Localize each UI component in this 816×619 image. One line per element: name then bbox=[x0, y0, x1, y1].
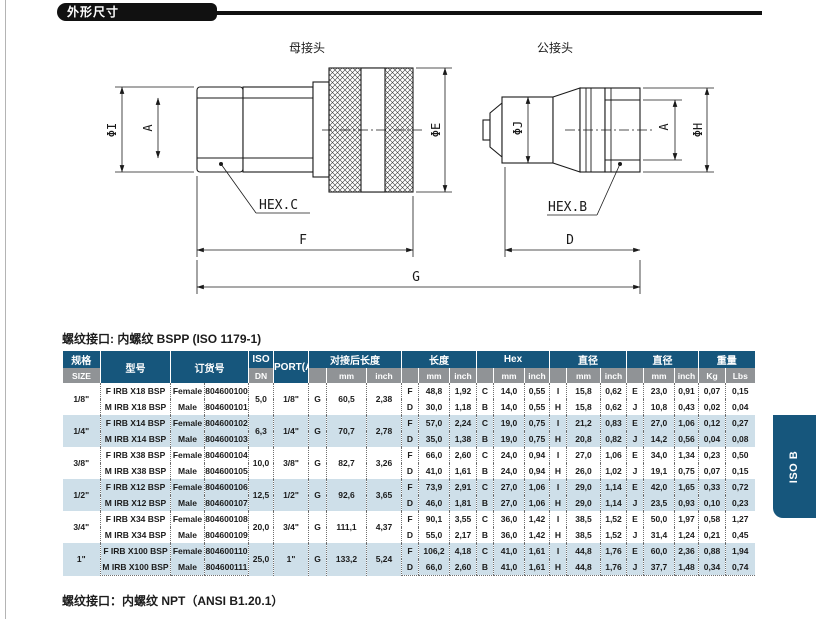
cell-hex-letter: B bbox=[477, 463, 494, 479]
col-header-model: 型号 bbox=[101, 351, 171, 383]
cell-hex-letter: B bbox=[477, 399, 494, 415]
cell-dia2-mm: 19,1 bbox=[644, 463, 675, 479]
col-header-weight: 重量 bbox=[699, 351, 755, 368]
cell-gender: Female bbox=[171, 415, 205, 431]
cell-size: 1" bbox=[63, 543, 101, 576]
cell-dia1-mm: 20,8 bbox=[567, 431, 601, 447]
cell-dia1-letter: I bbox=[550, 511, 567, 527]
col-header-iso: ISO bbox=[249, 351, 274, 368]
cell-size: 3/8" bbox=[63, 447, 101, 479]
cell-dia2-inch: 1,97 bbox=[675, 511, 699, 527]
cell-dia1-mm: 29,0 bbox=[567, 495, 601, 511]
cell-hex-mm: 36,0 bbox=[494, 527, 525, 543]
cell-hex-letter: C bbox=[477, 543, 494, 559]
cell-dia2-letter: E bbox=[627, 479, 644, 495]
cell-dia1-letter: H bbox=[550, 399, 567, 415]
cell-length-letter: D bbox=[402, 495, 419, 511]
dim-label-d: D bbox=[566, 233, 574, 248]
cell-hex-mm: 14,0 bbox=[494, 383, 525, 399]
cell-connected-inch: 5,24 bbox=[367, 543, 402, 576]
cell-weight-kg: 0,23 bbox=[699, 447, 726, 463]
cell-length-mm: 66,0 bbox=[419, 447, 450, 463]
cell-weight-kg: 0,07 bbox=[699, 463, 726, 479]
cell-length-inch: 1,18 bbox=[450, 399, 477, 415]
cell-hex-inch: 1,42 bbox=[525, 511, 550, 527]
cell-hex-inch: 1,61 bbox=[525, 543, 550, 559]
cell-port: 1" bbox=[274, 543, 309, 576]
dim-label-a-female: A bbox=[141, 124, 155, 132]
side-tab-iso-b[interactable]: ISO B bbox=[773, 415, 816, 518]
cell-hex-mm: 41,0 bbox=[494, 543, 525, 559]
cell-dia1-mm: 15,8 bbox=[567, 399, 601, 415]
cell-model: M IRB X34 BSP bbox=[101, 527, 171, 543]
cell-gender: Male bbox=[171, 559, 205, 576]
cell-model: M IRB X18 BSP bbox=[101, 399, 171, 415]
cell-dia1-letter: H bbox=[550, 431, 567, 447]
spec-table-head: 规格 型号 订货号 ISO PORT(A) 对接后长度 长度 Hex 直径 直径… bbox=[63, 351, 755, 383]
cell-dia1-inch: 1,52 bbox=[601, 527, 627, 543]
cell-length-inch: 1,81 bbox=[450, 495, 477, 511]
cell-connected-mm: 92,6 bbox=[327, 479, 367, 511]
cell-dia1-letter: H bbox=[550, 559, 567, 576]
col-header-diameter2: 直径 bbox=[627, 351, 699, 368]
col-header-order: 订货号 bbox=[171, 351, 249, 383]
col-header-size-en: SIZE bbox=[63, 368, 101, 383]
cell-dia1-inch: 0,62 bbox=[601, 383, 627, 399]
cell-dim-letter-g: G bbox=[309, 447, 327, 479]
col-header-dia2-mm: mm bbox=[644, 368, 675, 383]
cell-length-letter: F bbox=[402, 479, 419, 495]
cell-port: 3/4" bbox=[274, 511, 309, 543]
cell-order-number: 804600110 bbox=[205, 543, 249, 559]
col-header-dia1-inch: inch bbox=[601, 368, 627, 383]
cell-dia1-inch: 0,82 bbox=[601, 431, 627, 447]
cell-dia1-inch: 1,76 bbox=[601, 559, 627, 576]
cell-weight-lbs: 0,27 bbox=[726, 415, 755, 431]
cell-dia1-mm: 38,5 bbox=[567, 527, 601, 543]
cell-dia2-inch: 1,65 bbox=[675, 479, 699, 495]
cell-length-inch: 2,17 bbox=[450, 527, 477, 543]
cell-length-inch: 2,60 bbox=[450, 447, 477, 463]
cell-connected-mm: 70,7 bbox=[327, 415, 367, 447]
cell-dia2-inch: 0,93 bbox=[675, 495, 699, 511]
cell-dia1-letter: I bbox=[550, 383, 567, 399]
dim-label-phi-h: ΦH bbox=[691, 123, 705, 137]
cell-iso-dn: 12,5 bbox=[249, 479, 274, 511]
cell-weight-lbs: 0,15 bbox=[726, 383, 755, 399]
cell-weight-lbs: 0,15 bbox=[726, 463, 755, 479]
cell-hex-inch: 0,55 bbox=[525, 399, 550, 415]
cell-port: 1/2" bbox=[274, 479, 309, 511]
cell-order-number: 804600106 bbox=[205, 479, 249, 495]
col-header-port: PORT(A) bbox=[274, 351, 309, 383]
cell-hex-letter: C bbox=[477, 415, 494, 431]
cell-order-number: 804600102 bbox=[205, 415, 249, 431]
cell-hex-letter: C bbox=[477, 447, 494, 463]
cell-size: 1/8" bbox=[63, 383, 101, 415]
cell-weight-kg: 0,88 bbox=[699, 543, 726, 559]
cell-dia1-mm: 26,0 bbox=[567, 463, 601, 479]
cell-dia1-mm: 15,8 bbox=[567, 383, 601, 399]
cell-iso-dn: 5,0 bbox=[249, 383, 274, 415]
cell-dia2-letter: E bbox=[627, 447, 644, 463]
cell-weight-kg: 0,10 bbox=[699, 495, 726, 511]
cell-dia2-letter: E bbox=[627, 511, 644, 527]
cell-connected-inch: 3,65 bbox=[367, 479, 402, 511]
cell-order-number: 804600100 bbox=[205, 383, 249, 399]
cell-length-mm: 55,0 bbox=[419, 527, 450, 543]
cell-weight-lbs: 0,23 bbox=[726, 495, 755, 511]
cell-order-number: 804600105 bbox=[205, 463, 249, 479]
cell-length-mm: 73,9 bbox=[419, 479, 450, 495]
spec-table-wrap: 规格 型号 订货号 ISO PORT(A) 对接后长度 长度 Hex 直径 直径… bbox=[62, 351, 755, 576]
cell-connected-inch: 4,37 bbox=[367, 511, 402, 543]
cell-dia2-inch: 0,56 bbox=[675, 431, 699, 447]
cell-hex-mm: 14,0 bbox=[494, 399, 525, 415]
cell-order-number: 804600101 bbox=[205, 399, 249, 415]
cell-size: 3/4" bbox=[63, 511, 101, 543]
cell-length-mm: 57,0 bbox=[419, 415, 450, 431]
cell-length-inch: 1,38 bbox=[450, 431, 477, 447]
cell-order-number: 804600104 bbox=[205, 447, 249, 463]
cell-dia2-letter: J bbox=[627, 559, 644, 576]
cell-dia2-inch: 0,91 bbox=[675, 383, 699, 399]
cell-length-mm: 48,8 bbox=[419, 383, 450, 399]
col-header-lbs: Lbs bbox=[726, 368, 755, 383]
cell-dia1-mm: 44,8 bbox=[567, 543, 601, 559]
col-subheader-spacer bbox=[627, 368, 644, 383]
dimension-drawing: 母接头 公接头 ΦI A ΦE HEX.C F G bbox=[60, 30, 760, 320]
col-header-connected-length: 对接后长度 bbox=[309, 351, 402, 368]
page-left-border bbox=[5, 0, 6, 619]
dim-label-phi-e: ΦE bbox=[429, 123, 443, 137]
cell-dim-letter-g: G bbox=[309, 543, 327, 576]
col-header-hex-inch: inch bbox=[525, 368, 550, 383]
cell-gender: Male bbox=[171, 527, 205, 543]
dim-label-hex-c: HEX.C bbox=[259, 198, 298, 213]
spec-table-body: 1/8"F IRB X18 BSPFemale8046001005,01/8"G… bbox=[63, 383, 755, 576]
cell-weight-kg: 0,02 bbox=[699, 399, 726, 415]
dim-label-g: G bbox=[412, 270, 420, 285]
cell-length-letter: D bbox=[402, 399, 419, 415]
cell-dia1-letter: I bbox=[550, 415, 567, 431]
cell-length-letter: D bbox=[402, 431, 419, 447]
cell-hex-letter: C bbox=[477, 511, 494, 527]
cell-model: M IRB X12 BSP bbox=[101, 495, 171, 511]
thread-caption-npt: 螺纹接口：内螺纹 NPT（ANSI B1.20.1） bbox=[62, 592, 283, 609]
cell-weight-lbs: 0,72 bbox=[726, 479, 755, 495]
cell-hex-letter: C bbox=[477, 383, 494, 399]
dim-label-phi-i: ΦI bbox=[105, 123, 119, 137]
cell-gender: Female bbox=[171, 447, 205, 463]
cell-length-mm: 41,0 bbox=[419, 463, 450, 479]
cell-dia2-letter: J bbox=[627, 463, 644, 479]
cell-weight-kg: 0,07 bbox=[699, 383, 726, 399]
cell-dia2-inch: 0,43 bbox=[675, 399, 699, 415]
cell-hex-mm: 19,0 bbox=[494, 415, 525, 431]
cell-dia2-letter: J bbox=[627, 527, 644, 543]
cell-order-number: 804600108 bbox=[205, 511, 249, 527]
cell-dia1-inch: 0,62 bbox=[601, 399, 627, 415]
cell-dia1-letter: H bbox=[550, 527, 567, 543]
section-header-rule bbox=[212, 11, 762, 15]
cell-weight-lbs: 0,50 bbox=[726, 447, 755, 463]
cell-size: 1/4" bbox=[63, 415, 101, 447]
cell-length-mm: 106,2 bbox=[419, 543, 450, 559]
cell-hex-letter: B bbox=[477, 559, 494, 576]
cell-weight-lbs: 0,08 bbox=[726, 431, 755, 447]
spec-table: 规格 型号 订货号 ISO PORT(A) 对接后长度 长度 Hex 直径 直径… bbox=[62, 351, 755, 576]
col-header-len-inch: inch bbox=[450, 368, 477, 383]
dim-label-phi-j: ΦJ bbox=[511, 121, 525, 135]
cell-connected-inch: 2,78 bbox=[367, 415, 402, 447]
cell-connected-mm: 60,5 bbox=[327, 383, 367, 415]
cell-hex-letter: B bbox=[477, 495, 494, 511]
cell-dia1-letter: I bbox=[550, 479, 567, 495]
cell-connected-mm: 82,7 bbox=[327, 447, 367, 479]
cell-dia1-letter: H bbox=[550, 463, 567, 479]
cell-dia2-letter: E bbox=[627, 415, 644, 431]
cell-dia1-inch: 1,06 bbox=[601, 447, 627, 463]
col-header-len-mm: mm bbox=[419, 368, 450, 383]
section-header: 外形尺寸 bbox=[57, 3, 762, 21]
col-header-conn-inch: inch bbox=[367, 368, 402, 383]
cell-model: F IRB X38 BSP bbox=[101, 447, 171, 463]
dim-label-a-male: A bbox=[657, 123, 671, 131]
cell-dia2-letter: E bbox=[627, 383, 644, 399]
col-subheader-spacer bbox=[402, 368, 419, 383]
cell-order-number: 804600109 bbox=[205, 527, 249, 543]
col-header-dia2-inch: inch bbox=[675, 368, 699, 383]
cell-hex-mm: 19,0 bbox=[494, 431, 525, 447]
cell-length-inch: 2,91 bbox=[450, 479, 477, 495]
cell-port: 3/8" bbox=[274, 447, 309, 479]
cell-length-inch: 1,92 bbox=[450, 383, 477, 399]
cell-hex-inch: 0,75 bbox=[525, 431, 550, 447]
cell-dia2-mm: 37,7 bbox=[644, 559, 675, 576]
cell-hex-mm: 24,0 bbox=[494, 463, 525, 479]
cell-hex-letter: C bbox=[477, 479, 494, 495]
cell-port: 1/8" bbox=[274, 383, 309, 415]
dim-label-hex-b: HEX.B bbox=[548, 200, 587, 215]
col-header-length: 长度 bbox=[402, 351, 477, 368]
cell-weight-kg: 0,58 bbox=[699, 511, 726, 527]
cell-hex-inch: 1,06 bbox=[525, 495, 550, 511]
cell-length-mm: 66,0 bbox=[419, 559, 450, 576]
cell-dia1-inch: 1,02 bbox=[601, 463, 627, 479]
cell-dia1-letter: H bbox=[550, 495, 567, 511]
cell-dim-letter-g: G bbox=[309, 415, 327, 447]
cell-dim-letter-g: G bbox=[309, 511, 327, 543]
dim-label-f: F bbox=[299, 233, 307, 248]
cell-gender: Male bbox=[171, 399, 205, 415]
cell-hex-mm: 27,0 bbox=[494, 479, 525, 495]
cell-dia1-letter: I bbox=[550, 447, 567, 463]
cell-length-mm: 46,0 bbox=[419, 495, 450, 511]
cell-dia2-letter: J bbox=[627, 495, 644, 511]
cell-iso-dn: 6,3 bbox=[249, 415, 274, 447]
cell-dia1-inch: 1,52 bbox=[601, 511, 627, 527]
cell-length-mm: 35,0 bbox=[419, 431, 450, 447]
cell-model: F IRB X34 BSP bbox=[101, 511, 171, 527]
cell-gender: Male bbox=[171, 463, 205, 479]
cell-length-inch: 2,24 bbox=[450, 415, 477, 431]
cell-dia1-inch: 1,14 bbox=[601, 495, 627, 511]
cell-length-letter: F bbox=[402, 415, 419, 431]
cell-order-number: 804600111 bbox=[205, 559, 249, 576]
cell-dia1-inch: 0,83 bbox=[601, 415, 627, 431]
cell-dia2-letter: E bbox=[627, 543, 644, 559]
cell-hex-inch: 1,42 bbox=[525, 527, 550, 543]
male-drawing-title: 公接头 bbox=[537, 40, 573, 55]
cell-weight-lbs: 0,45 bbox=[726, 527, 755, 543]
cell-dia2-mm: 31,4 bbox=[644, 527, 675, 543]
cell-iso-dn: 10,0 bbox=[249, 447, 274, 479]
cell-model: M IRB X14 BSP bbox=[101, 431, 171, 447]
cell-iso-dn: 25,0 bbox=[249, 543, 274, 576]
cell-weight-lbs: 0,74 bbox=[726, 559, 755, 576]
cell-iso-dn: 20,0 bbox=[249, 511, 274, 543]
cell-dia2-mm: 34,0 bbox=[644, 447, 675, 463]
cell-dia1-mm: 44,8 bbox=[567, 559, 601, 576]
cell-dim-letter-g: G bbox=[309, 479, 327, 511]
cell-hex-inch: 1,61 bbox=[525, 559, 550, 576]
cell-hex-mm: 24,0 bbox=[494, 447, 525, 463]
cell-hex-inch: 0,94 bbox=[525, 447, 550, 463]
cell-dia1-mm: 29,0 bbox=[567, 479, 601, 495]
cell-length-letter: D bbox=[402, 463, 419, 479]
col-header-conn-mm: mm bbox=[327, 368, 367, 383]
cell-weight-kg: 0,34 bbox=[699, 559, 726, 576]
cell-dia2-inch: 1,34 bbox=[675, 447, 699, 463]
cell-dia1-mm: 38,5 bbox=[567, 511, 601, 527]
cell-model: M IRB X38 BSP bbox=[101, 463, 171, 479]
cell-dia2-inch: 1,06 bbox=[675, 415, 699, 431]
col-header-dia1-mm: mm bbox=[567, 368, 601, 383]
cell-hex-inch: 0,75 bbox=[525, 415, 550, 431]
cell-length-mm: 90,1 bbox=[419, 511, 450, 527]
cell-dia2-inch: 1,24 bbox=[675, 527, 699, 543]
cell-weight-lbs: 0,04 bbox=[726, 399, 755, 415]
cell-hex-mm: 27,0 bbox=[494, 495, 525, 511]
cell-connected-inch: 3,26 bbox=[367, 447, 402, 479]
col-header-hex-mm: mm bbox=[494, 368, 525, 383]
cell-dia1-letter: I bbox=[550, 543, 567, 559]
cell-dia2-mm: 10,8 bbox=[644, 399, 675, 415]
cell-dia1-mm: 21,2 bbox=[567, 415, 601, 431]
cell-weight-kg: 0,21 bbox=[699, 527, 726, 543]
cell-length-inch: 3,55 bbox=[450, 511, 477, 527]
cell-order-number: 804600107 bbox=[205, 495, 249, 511]
col-header-dn: DN bbox=[249, 368, 274, 383]
cell-hex-letter: B bbox=[477, 431, 494, 447]
cell-length-letter: F bbox=[402, 447, 419, 463]
cell-dia2-letter: J bbox=[627, 431, 644, 447]
cell-hex-inch: 0,55 bbox=[525, 383, 550, 399]
cell-size: 1/2" bbox=[63, 479, 101, 511]
cell-dia2-inch: 2,36 bbox=[675, 543, 699, 559]
cell-dia2-mm: 27,0 bbox=[644, 415, 675, 431]
cell-hex-mm: 41,0 bbox=[494, 559, 525, 576]
cell-model: F IRB X18 BSP bbox=[101, 383, 171, 399]
cell-gender: Male bbox=[171, 495, 205, 511]
cell-gender: Male bbox=[171, 431, 205, 447]
col-header-kg: Kg bbox=[699, 368, 726, 383]
cell-dia2-mm: 23,5 bbox=[644, 495, 675, 511]
cell-length-inch: 2,60 bbox=[450, 559, 477, 576]
cell-gender: Female bbox=[171, 543, 205, 559]
cell-length-letter: D bbox=[402, 527, 419, 543]
cell-length-letter: D bbox=[402, 559, 419, 576]
cell-hex-inch: 0,94 bbox=[525, 463, 550, 479]
cell-weight-kg: 0,33 bbox=[699, 479, 726, 495]
cell-gender: Female bbox=[171, 383, 205, 399]
cell-gender: Female bbox=[171, 479, 205, 495]
cell-dia2-inch: 0,75 bbox=[675, 463, 699, 479]
cell-weight-kg: 0,12 bbox=[699, 415, 726, 431]
cell-model: F IRB X12 BSP bbox=[101, 479, 171, 495]
cell-connected-inch: 2,38 bbox=[367, 383, 402, 415]
cell-length-mm: 30,0 bbox=[419, 399, 450, 415]
cell-dia2-mm: 50,0 bbox=[644, 511, 675, 527]
cell-hex-letter: B bbox=[477, 527, 494, 543]
cell-length-inch: 1,61 bbox=[450, 463, 477, 479]
cell-dim-letter-g: G bbox=[309, 383, 327, 415]
col-subheader-spacer bbox=[477, 368, 494, 383]
cell-length-inch: 4,18 bbox=[450, 543, 477, 559]
cell-model: M IRB X100 BSP bbox=[101, 559, 171, 576]
cell-weight-kg: 0,04 bbox=[699, 431, 726, 447]
cell-dia1-inch: 1,14 bbox=[601, 479, 627, 495]
cell-model: F IRB X100 BSP bbox=[101, 543, 171, 559]
cell-connected-mm: 133,2 bbox=[327, 543, 367, 576]
col-subheader-spacer bbox=[550, 368, 567, 383]
col-subheader-spacer bbox=[309, 368, 327, 383]
cell-length-letter: F bbox=[402, 383, 419, 399]
cell-hex-mm: 36,0 bbox=[494, 511, 525, 527]
cell-weight-lbs: 1,94 bbox=[726, 543, 755, 559]
col-header-diameter1: 直径 bbox=[550, 351, 627, 368]
cell-connected-mm: 111,1 bbox=[327, 511, 367, 543]
cell-model: F IRB X14 BSP bbox=[101, 415, 171, 431]
cell-length-letter: F bbox=[402, 511, 419, 527]
section-title: 外形尺寸 bbox=[57, 3, 217, 21]
male-coupling-outline bbox=[483, 88, 640, 172]
cell-hex-inch: 1,06 bbox=[525, 479, 550, 495]
cell-dia2-mm: 23,0 bbox=[644, 383, 675, 399]
side-tab-label: ISO B bbox=[788, 450, 800, 482]
cell-length-letter: F bbox=[402, 543, 419, 559]
cell-order-number: 804600103 bbox=[205, 431, 249, 447]
cell-dia1-mm: 27,0 bbox=[567, 447, 601, 463]
cell-dia2-mm: 42,0 bbox=[644, 479, 675, 495]
female-drawing-title: 母接头 bbox=[289, 40, 325, 55]
cell-dia2-mm: 14,2 bbox=[644, 431, 675, 447]
col-header-hex: Hex bbox=[477, 351, 550, 368]
cell-dia2-letter: J bbox=[627, 399, 644, 415]
thread-caption-bspp: 螺纹接口: 内螺纹 BSPP (ISO 1179-1) bbox=[62, 330, 261, 347]
cell-dia1-inch: 1,76 bbox=[601, 543, 627, 559]
cell-dia2-inch: 1,48 bbox=[675, 559, 699, 576]
cell-weight-lbs: 1,27 bbox=[726, 511, 755, 527]
cell-gender: Female bbox=[171, 511, 205, 527]
col-header-size-zh: 规格 bbox=[63, 351, 101, 368]
cell-dia2-mm: 60,0 bbox=[644, 543, 675, 559]
cell-port: 1/4" bbox=[274, 415, 309, 447]
